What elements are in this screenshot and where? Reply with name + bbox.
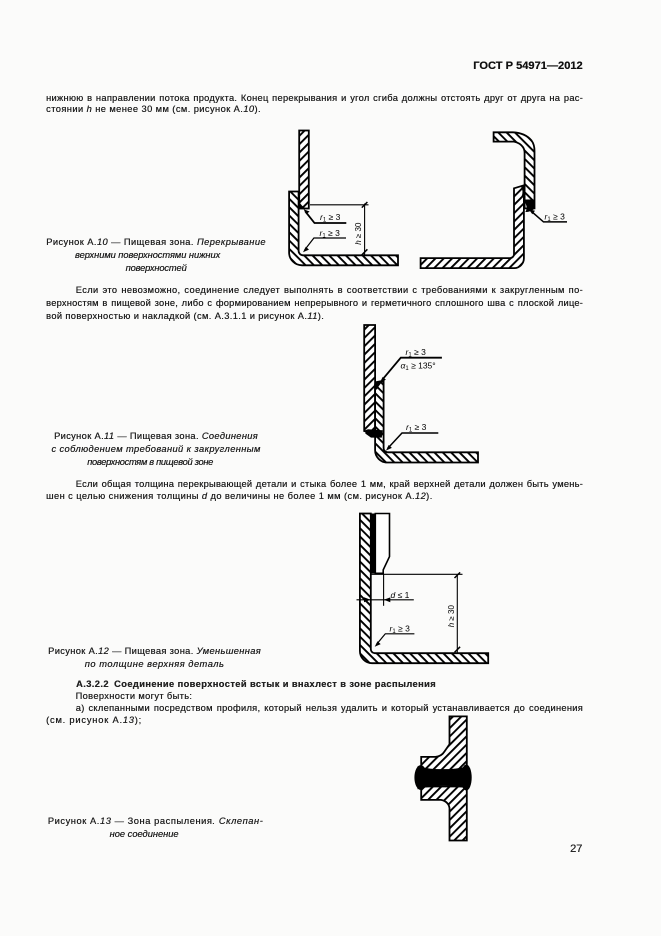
svg-text:α1 ≥ 135°: α1 ≥ 135° bbox=[401, 361, 436, 373]
svg-text:r1 ≥ 3: r1 ≥ 3 bbox=[320, 228, 341, 240]
svg-text:h ≥ 30: h ≥ 30 bbox=[447, 605, 456, 628]
svg-text:d ≤ 1: d ≤ 1 bbox=[391, 590, 410, 600]
svg-text:r1 ≥ 3: r1 ≥ 3 bbox=[545, 211, 566, 223]
svg-text:r1 ≥ 3: r1 ≥ 3 bbox=[320, 212, 341, 224]
svg-text:r1 ≥ 3: r1 ≥ 3 bbox=[406, 422, 427, 434]
svg-text:r1 ≥ 3: r1 ≥ 3 bbox=[390, 623, 411, 635]
svg-text:h ≥ 30: h ≥ 30 bbox=[354, 222, 363, 245]
svg-text:r1 ≥ 3: r1 ≥ 3 bbox=[406, 347, 427, 359]
